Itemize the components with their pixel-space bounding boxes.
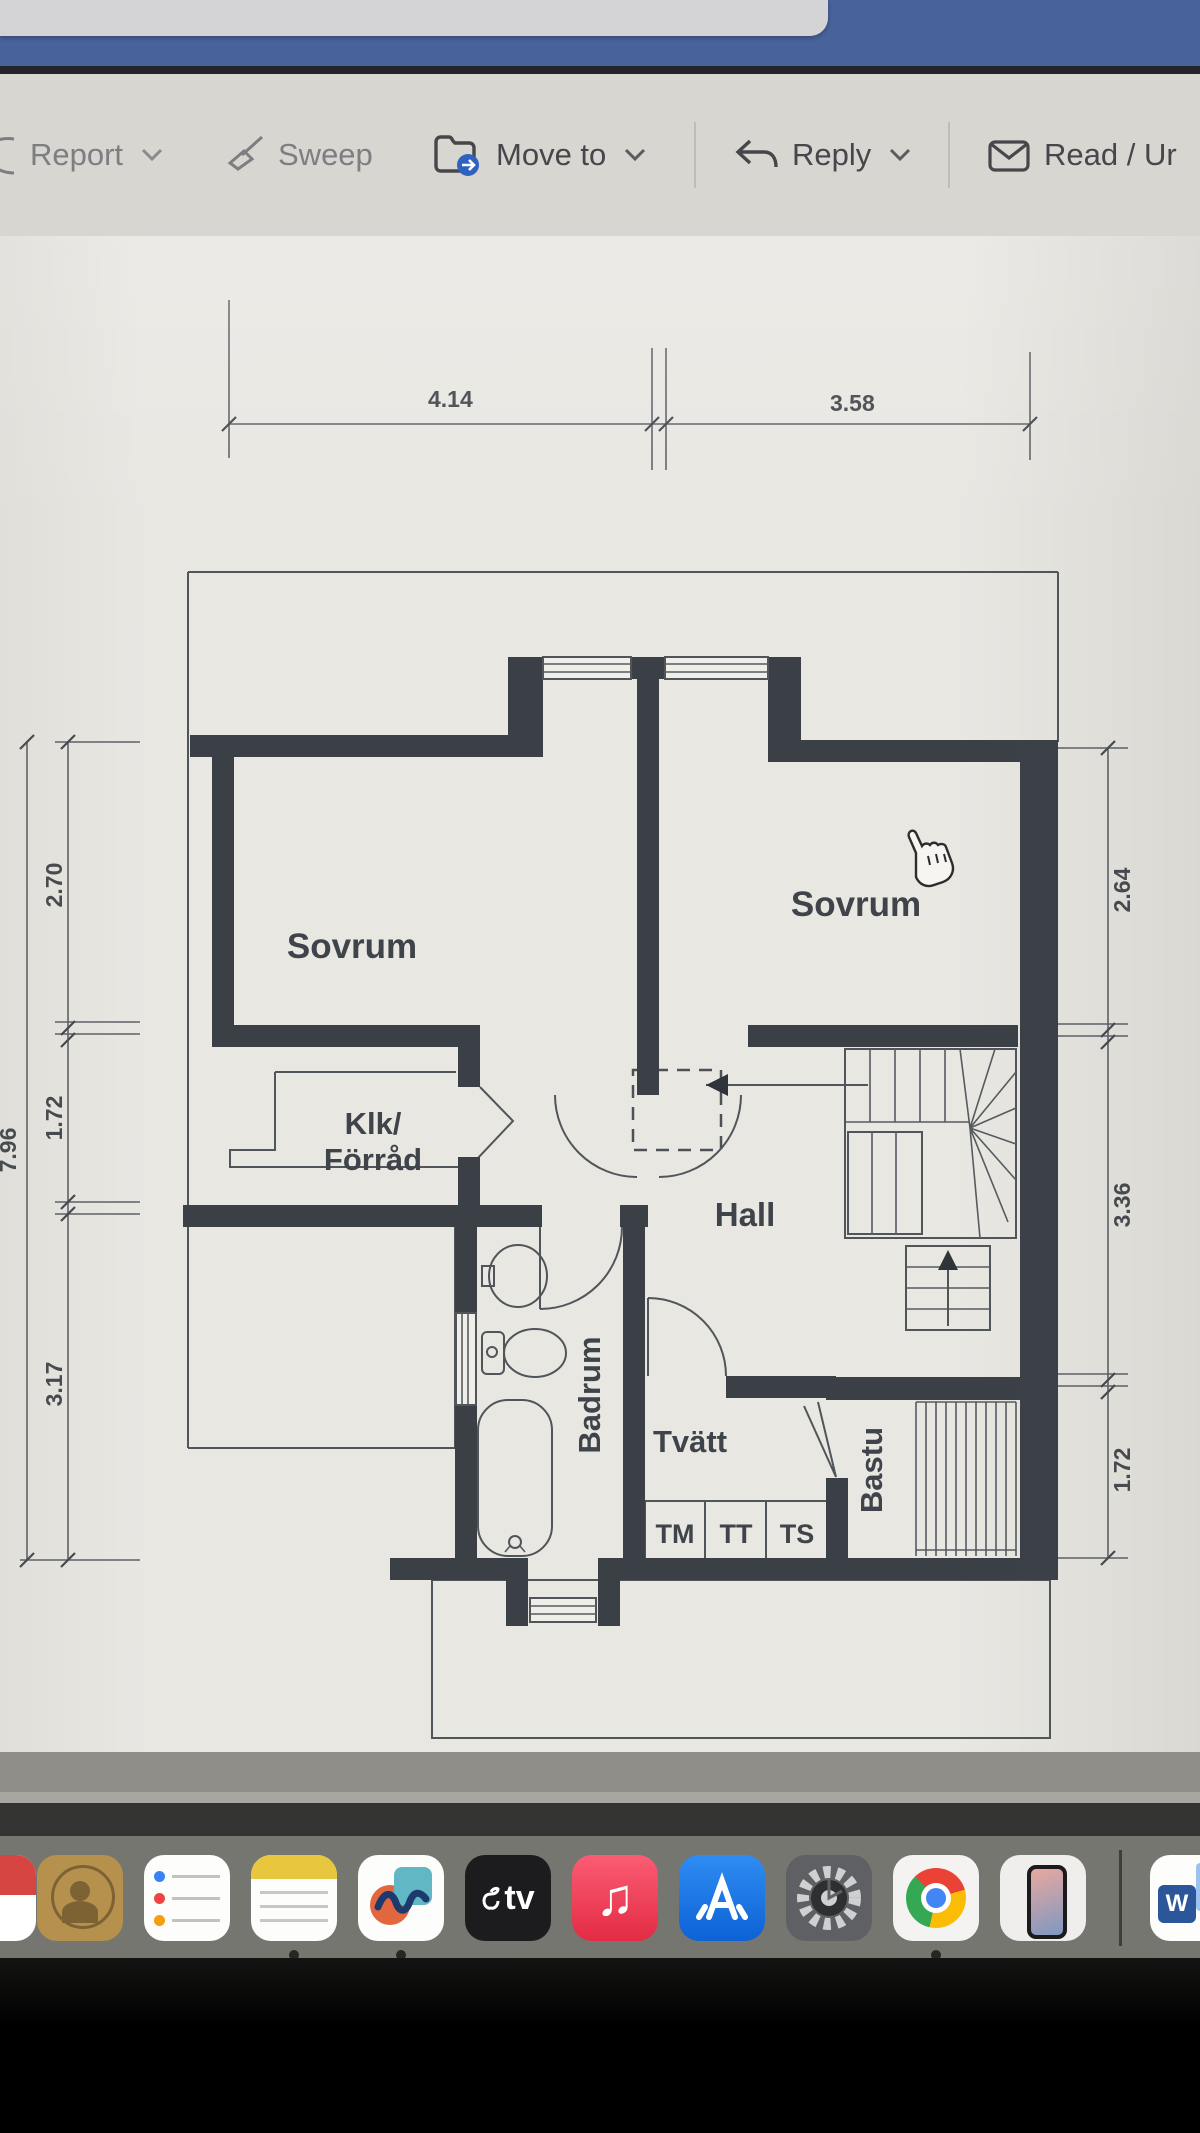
report-label: Report bbox=[30, 137, 123, 173]
active-tab[interactable] bbox=[0, 0, 828, 36]
chevron-down-icon bbox=[889, 148, 911, 162]
tab-bar-divider bbox=[0, 66, 1200, 74]
reply-button[interactable]: Reply bbox=[732, 74, 911, 236]
bathtub bbox=[478, 1400, 552, 1556]
floorplan-drawing: 4.14 3.58 2.70 1.72 3.17 7.96 2.64 3.36 … bbox=[0, 236, 1200, 1752]
dimension-right: 2.64 3.36 1.72 bbox=[1045, 741, 1135, 1565]
clipped-app-icon[interactable] bbox=[0, 1855, 36, 1941]
dim-top-2: 3.58 bbox=[830, 390, 875, 416]
room-labels: Sovrum Sovrum Klk/ Förråd Hall Badrum Tv… bbox=[287, 885, 921, 1513]
sink bbox=[482, 1245, 547, 1307]
dimension-left: 2.70 1.72 3.17 7.96 bbox=[0, 735, 140, 1567]
window-bay-left bbox=[543, 657, 631, 679]
door-sovrum-right bbox=[659, 1095, 741, 1177]
room-label-badrum: Badrum bbox=[572, 1336, 607, 1453]
word-icon[interactable]: W bbox=[1150, 1855, 1200, 1941]
bathroom-fixtures bbox=[478, 1245, 566, 1556]
move-to-label: Move to bbox=[496, 137, 606, 173]
toolbar-divider bbox=[948, 122, 950, 188]
room-label-bastu: Bastu bbox=[854, 1427, 889, 1513]
chevron-down-icon bbox=[141, 148, 163, 162]
app-store-icon[interactable] bbox=[679, 1855, 765, 1941]
window-bottom-edge bbox=[0, 1752, 1200, 1792]
toolbar-divider bbox=[694, 122, 696, 188]
appliance-tm-label: TM bbox=[656, 1519, 695, 1549]
apple-tv-icon[interactable]: tv bbox=[465, 1855, 551, 1941]
music-note-glyph: ♫ bbox=[596, 1868, 635, 1928]
email-body-floorplan: 4.14 3.58 2.70 1.72 3.17 7.96 2.64 3.36 … bbox=[0, 236, 1200, 1752]
word-label: W bbox=[1166, 1890, 1189, 1918]
dim-left-1: 2.70 bbox=[41, 863, 67, 908]
hand-cursor bbox=[909, 831, 953, 886]
report-button[interactable]: Report bbox=[30, 74, 163, 236]
room-label-klk-2: Förråd bbox=[324, 1142, 422, 1177]
settings-icon[interactable] bbox=[786, 1855, 872, 1941]
sweep-broom-icon bbox=[222, 133, 266, 177]
photographed-screen: Report Sweep Move to Reply bbox=[0, 0, 1200, 2133]
room-label-klk-1: Klk/ bbox=[345, 1106, 402, 1141]
dimension-top: 4.14 3.58 bbox=[222, 300, 1037, 470]
door-bastu bbox=[804, 1402, 836, 1477]
chrome-icon[interactable] bbox=[893, 1855, 979, 1941]
contacts-icon[interactable] bbox=[37, 1855, 123, 1941]
macos-dock: tv ♫ W bbox=[0, 1836, 1200, 1958]
report-icon bbox=[0, 74, 18, 236]
read-unread-button[interactable]: Read / Ur bbox=[986, 74, 1177, 236]
browser-tab-bar bbox=[0, 0, 1200, 66]
dock-shadow bbox=[0, 1803, 1200, 1836]
envelope-icon bbox=[986, 135, 1032, 175]
notes-icon[interactable] bbox=[251, 1855, 337, 1941]
sweep-label: Sweep bbox=[278, 137, 373, 173]
reply-label: Reply bbox=[792, 137, 871, 173]
move-to-button[interactable]: Move to bbox=[432, 74, 646, 236]
door-badrum bbox=[540, 1227, 622, 1309]
laundry-appliances: TM TT TS bbox=[645, 1501, 826, 1558]
reminders-icon[interactable] bbox=[144, 1855, 230, 1941]
door-sovrum-left bbox=[555, 1095, 637, 1177]
sauna-benches bbox=[916, 1402, 1016, 1556]
dim-left-2: 1.72 bbox=[41, 1096, 67, 1141]
screen-bezel bbox=[0, 1958, 1200, 2133]
mail-toolbar: Report Sweep Move to Reply bbox=[0, 74, 1200, 238]
sweep-button[interactable]: Sweep bbox=[222, 74, 373, 236]
freeform-icon[interactable] bbox=[358, 1855, 444, 1941]
read-unread-label: Read / Ur bbox=[1044, 137, 1177, 173]
room-label-hall: Hall bbox=[715, 1196, 776, 1233]
dim-right-3: 1.72 bbox=[1109, 1448, 1135, 1493]
desktop-strip bbox=[0, 1792, 1200, 1803]
room-label-sovrum-right: Sovrum bbox=[791, 885, 921, 924]
dim-left-total: 7.96 bbox=[0, 1128, 21, 1173]
apple-tv-label: tv bbox=[504, 1879, 534, 1918]
dim-right-2: 3.36 bbox=[1109, 1183, 1135, 1228]
dock-separator bbox=[1119, 1850, 1122, 1946]
dim-right-1: 2.64 bbox=[1109, 867, 1135, 912]
appliance-ts-label: TS bbox=[780, 1519, 815, 1549]
reply-arrow-icon bbox=[732, 135, 780, 175]
dim-left-3: 3.17 bbox=[41, 1362, 67, 1407]
chevron-down-icon bbox=[624, 148, 646, 162]
dim-top-1: 4.14 bbox=[428, 386, 473, 412]
lower-staircase bbox=[906, 1246, 990, 1330]
door-tvatt bbox=[648, 1298, 726, 1376]
music-icon[interactable]: ♫ bbox=[572, 1855, 658, 1941]
room-label-tvatt: Tvätt bbox=[653, 1424, 727, 1459]
toilet bbox=[482, 1329, 566, 1377]
window-bay-right bbox=[665, 657, 768, 679]
window-badrum-hatch bbox=[456, 1313, 476, 1405]
iphone-mirroring-icon[interactable] bbox=[1000, 1855, 1086, 1941]
move-to-folder-icon bbox=[432, 132, 484, 178]
appliance-tt-label: TT bbox=[720, 1519, 753, 1549]
room-label-sovrum-left: Sovrum bbox=[287, 927, 417, 966]
window-bottom bbox=[530, 1598, 596, 1622]
